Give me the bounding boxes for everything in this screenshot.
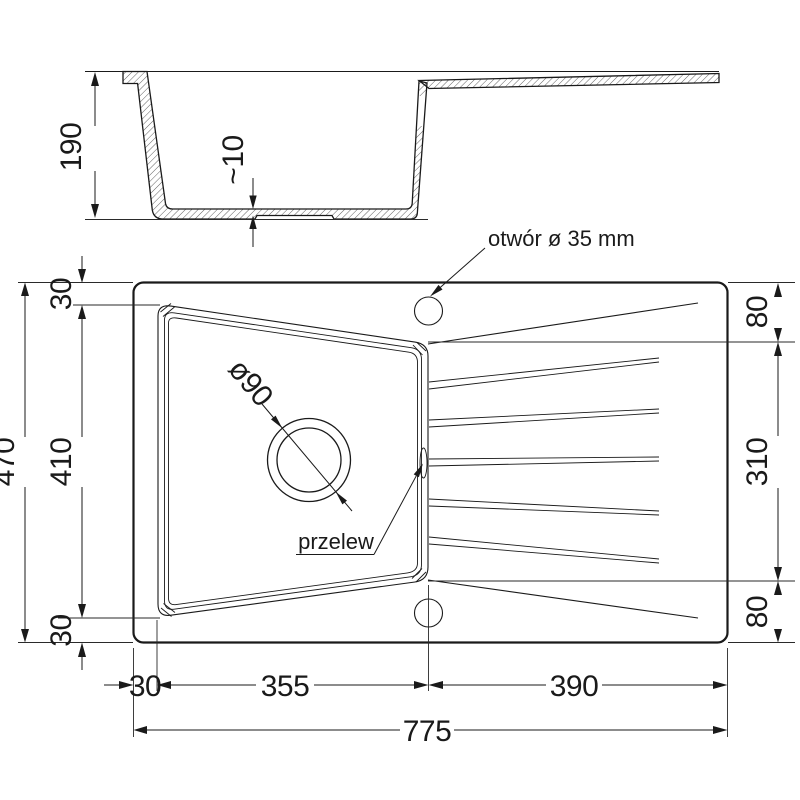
arrow-down-icon (91, 204, 99, 218)
dim-right-bottom: 80 (741, 581, 782, 643)
drainer-top-slope (428, 303, 698, 344)
dim-height-basin: 410 (45, 305, 86, 618)
dim-right-top: 80 (741, 283, 782, 342)
arrow-up-icon (91, 72, 99, 86)
sink-body-outline (134, 283, 728, 643)
dim-depth-190: 190 (55, 72, 99, 218)
basin-outer-rim (158, 306, 428, 616)
tap-hole-label: otwór ø 35 mm (488, 226, 635, 251)
section-basin-profile (123, 72, 427, 220)
dim-rim-left: 30 (104, 670, 161, 703)
dim-drain-diameter: ø90 (222, 353, 352, 511)
dim-basin-width: 355 (157, 670, 429, 703)
basin: ø90 (158, 304, 428, 617)
dim-depth-value: 190 (55, 123, 88, 172)
plan-dimensions: 470 30 410 30 80 (0, 256, 795, 748)
dim-rim-left-value: 30 (129, 670, 161, 703)
dim-height-total: 470 (0, 283, 29, 643)
dim-basin-width-value: 355 (261, 670, 310, 703)
tap-hole-callout: otwór ø 35 mm (430, 226, 635, 297)
overflow-label: przelew (298, 529, 374, 554)
drainer-area (428, 303, 698, 618)
dim-rim-bottom-value: 30 (45, 614, 78, 646)
dim-drainer-width-value: 390 (550, 670, 599, 703)
section-basin-outline (123, 72, 427, 220)
dim-height-total-value: 470 (0, 438, 21, 487)
drainer-bottom-slope (428, 580, 698, 618)
dim-right-drainer-value: 310 (741, 438, 774, 487)
drain-diameter-value: ø90 (222, 353, 280, 413)
basin-mid-rim (165, 313, 422, 610)
overflow-callout: przelew (296, 464, 423, 555)
drainer-grooves (429, 358, 659, 563)
dim-bottom-thickness: ~10 (217, 135, 257, 247)
sink-technical-drawing: 190 ~10 (0, 0, 800, 800)
dim-thickness-value: ~10 (217, 135, 250, 184)
dim-right-bottom-value: 80 (741, 596, 774, 628)
dim-right-top-value: 80 (741, 296, 774, 328)
dim-width-total-value: 775 (403, 715, 452, 748)
tap-hole-top (415, 297, 443, 325)
dim-drainer-width: 390 (429, 670, 728, 703)
dim-width-total: 775 (134, 715, 728, 748)
dim-rim-top: 30 (45, 256, 86, 310)
dim-rim-top-value: 30 (45, 278, 78, 310)
plan-view: ø90 otw (134, 226, 728, 643)
arrow-down-icon (249, 196, 256, 210)
dim-right-drainer: 310 (741, 342, 782, 581)
basin-inner-rim (169, 318, 418, 605)
basin-corner-facets (161, 304, 427, 617)
section-view: 190 ~10 (55, 72, 719, 248)
dim-height-basin-value: 410 (45, 438, 78, 487)
